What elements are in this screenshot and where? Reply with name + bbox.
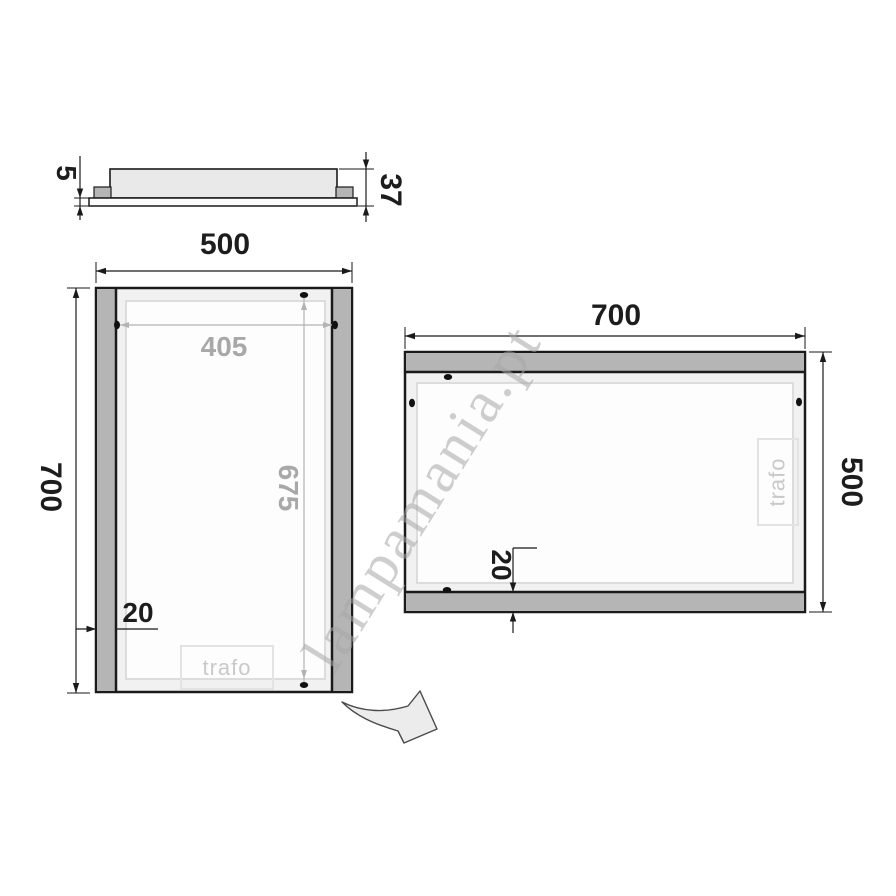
trafo-label-portrait: trafo	[202, 655, 251, 681]
trafo-box-landscape: trafo	[757, 438, 799, 526]
mount-hole-left	[114, 321, 120, 329]
dim-label-inner-width: 405	[174, 330, 274, 364]
dim-label-portrait-width: 500	[175, 228, 275, 262]
dim700l-arrow-right	[795, 333, 805, 339]
profile-foot-right	[336, 187, 353, 198]
profile-body	[110, 169, 337, 198]
mount-hole-top-l	[444, 374, 452, 380]
dim-label-portrait-frame: 20	[103, 598, 173, 628]
rotate-arrow-icon	[342, 691, 437, 743]
trafo-label-landscape: trafo	[765, 457, 791, 506]
dim-label-glass-thickness: 5	[46, 153, 86, 193]
profile-view	[74, 152, 374, 222]
dim500-arrow-left	[96, 268, 106, 274]
dim500l-arrow-bottom	[820, 602, 826, 612]
portrait-led-strip-left	[97, 289, 115, 691]
profile-foot-left	[94, 187, 111, 198]
mount-hole-bottom-l	[443, 587, 451, 593]
dim-label-depth: 37	[375, 155, 405, 225]
dim5-arrow-up	[77, 206, 83, 216]
dim20p-arrow	[87, 626, 97, 632]
dim-label-inner-height: 675	[271, 438, 305, 538]
dim700l-arrow-left	[405, 333, 415, 339]
dim700-arrow-top	[73, 288, 79, 298]
dim37-arrow-up	[363, 206, 369, 216]
mount-hole-left-l	[409, 399, 415, 407]
dim-label-landscape-height: 500	[834, 432, 868, 532]
mount-hole-top	[300, 292, 308, 298]
technical-drawing-canvas: 5 37 500 700 405 675 20 trafo 700 500 20…	[0, 0, 896, 896]
mount-hole-right	[332, 321, 338, 329]
dim500-arrow-right	[342, 268, 352, 274]
dim700-arrow-bottom	[73, 683, 79, 693]
dim-label-portrait-height: 700	[33, 437, 67, 537]
dim37-arrow-down	[363, 160, 369, 170]
dim20l-arrow-up	[510, 612, 516, 622]
trafo-box-portrait: trafo	[180, 645, 274, 690]
dim-label-landscape-frame: 20	[486, 530, 516, 600]
mount-hole-right-l	[796, 398, 802, 406]
profile-glass	[89, 198, 357, 206]
dim500l-arrow-top	[820, 352, 826, 362]
landscape-led-strip-bottom	[406, 592, 804, 611]
